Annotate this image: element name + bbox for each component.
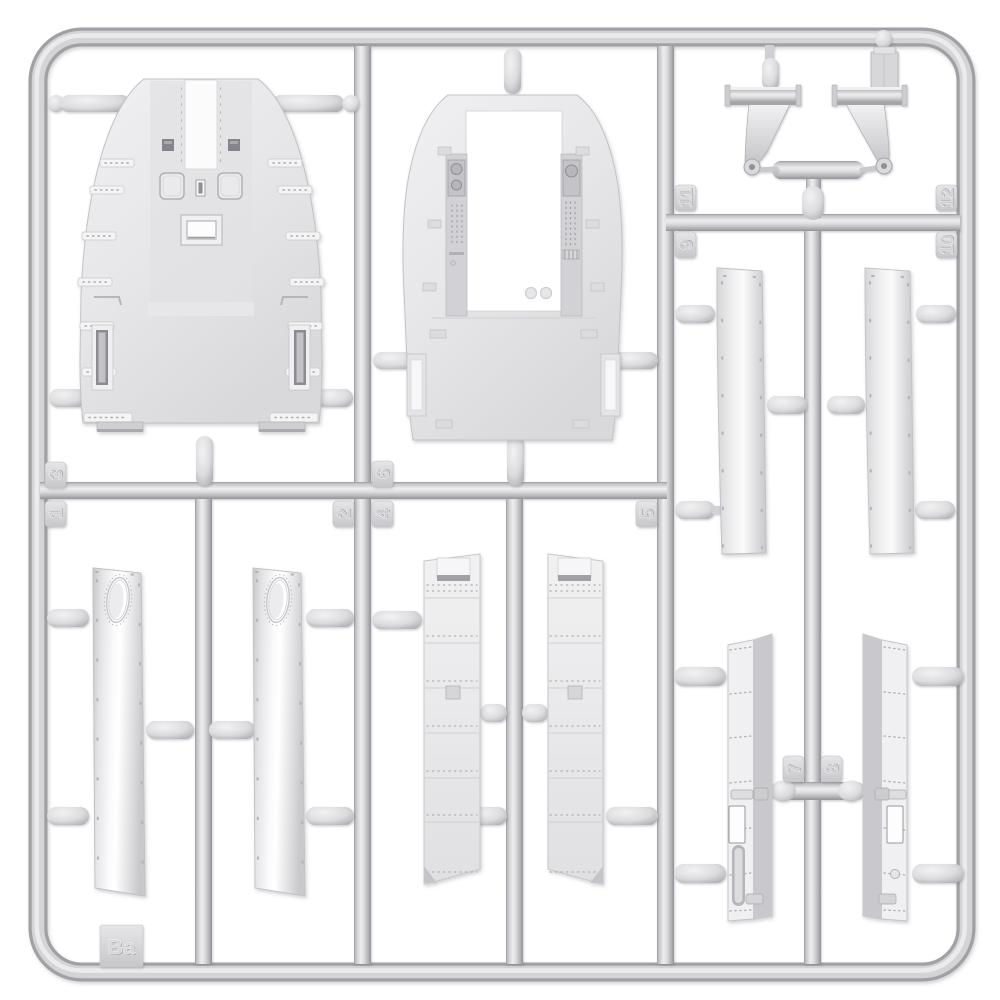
part-3-upper-hull bbox=[78, 79, 324, 432]
tag-number: 3 bbox=[46, 470, 66, 480]
part-8-track-panel bbox=[863, 634, 907, 921]
runner-t-bar bbox=[772, 161, 864, 179]
instrument-strip-left bbox=[446, 154, 467, 316]
runner-vertical-1c bbox=[506, 490, 523, 964]
part-number-tag-4: 4 4 bbox=[372, 501, 394, 527]
tag-number: 9 bbox=[676, 240, 696, 250]
driver-plate-slot bbox=[185, 80, 217, 169]
part-2-curved-panel bbox=[253, 568, 305, 896]
part-5-riveted-panel bbox=[548, 554, 603, 884]
tag-number: 7 bbox=[784, 764, 804, 774]
tag-number: 11 bbox=[676, 188, 696, 207]
part-number-tag-7: 7 7 bbox=[783, 756, 805, 782]
part-number-tag-5: 5 5 bbox=[636, 501, 658, 527]
part-4-riveted-panel bbox=[424, 554, 480, 884]
slot-opening bbox=[887, 806, 903, 843]
top-notch bbox=[558, 558, 591, 581]
part-number-tag-8: 8 8 bbox=[821, 756, 843, 782]
sprue-photo: 3 3 1 1 6 6 2 2 4 4 5 5 11 11 12 12 9 9 bbox=[0, 0, 1000, 1000]
part-number-tag-3: 3 3 bbox=[45, 462, 67, 488]
tag-number: 8 bbox=[822, 764, 842, 774]
hatch-frame bbox=[181, 215, 222, 245]
part-10-side-skirt bbox=[865, 268, 914, 554]
runner-vertical-3 bbox=[804, 222, 821, 964]
part-9-shadow-wrap bbox=[717, 268, 766, 554]
part-number-tag-1: 1 1 bbox=[45, 501, 67, 527]
slot-opening bbox=[729, 806, 745, 843]
part-7-track-panel bbox=[728, 634, 772, 921]
hull-opening bbox=[466, 111, 562, 311]
tag-number: 2 bbox=[334, 509, 354, 519]
runner-vertical-1 bbox=[354, 46, 371, 964]
runner-vertical-2 bbox=[657, 46, 674, 964]
tag-number: 4 bbox=[373, 509, 393, 519]
runner-vertical-0 bbox=[195, 490, 212, 964]
top-notch bbox=[437, 558, 470, 581]
angle-face bbox=[753, 634, 772, 919]
part-number-tag-9: 9 9 bbox=[675, 232, 697, 258]
tag-number: 5 bbox=[637, 509, 657, 519]
vision-slot-left bbox=[92, 325, 113, 390]
sprue-letter-tag: Ba Ba bbox=[100, 925, 143, 967]
gate-pill bbox=[802, 186, 824, 220]
tag-number: 12 bbox=[937, 188, 957, 208]
sprue-illustration: 3 3 1 1 6 6 2 2 4 4 5 5 11 11 12 12 9 9 bbox=[0, 0, 1000, 1000]
part-number-tag-12: 12 12 bbox=[936, 185, 958, 211]
tag-number: 1 bbox=[46, 509, 66, 519]
gate-pill bbox=[838, 781, 864, 802]
part-number-tag-11: 11 11 bbox=[675, 185, 697, 211]
side-pocket-right bbox=[601, 354, 620, 416]
sprue-letter: Ba bbox=[108, 936, 136, 959]
latch bbox=[731, 790, 753, 799]
part-number-tag-6: 6 6 bbox=[372, 461, 394, 487]
part-1-shadow-wrap bbox=[93, 568, 145, 896]
vision-slot-right bbox=[289, 325, 310, 390]
gate-pill bbox=[770, 781, 796, 802]
runner-horizontal-1 bbox=[40, 482, 667, 499]
part-6-hull-interior bbox=[403, 95, 622, 440]
part-number-tag-10: 10 10 bbox=[936, 232, 958, 258]
tag-number: 6 bbox=[373, 469, 393, 479]
angle-face bbox=[863, 634, 882, 919]
part-number-tag-2: 2 2 bbox=[333, 501, 355, 527]
tag-number: 10 bbox=[937, 235, 957, 255]
side-pocket-left bbox=[407, 354, 426, 416]
